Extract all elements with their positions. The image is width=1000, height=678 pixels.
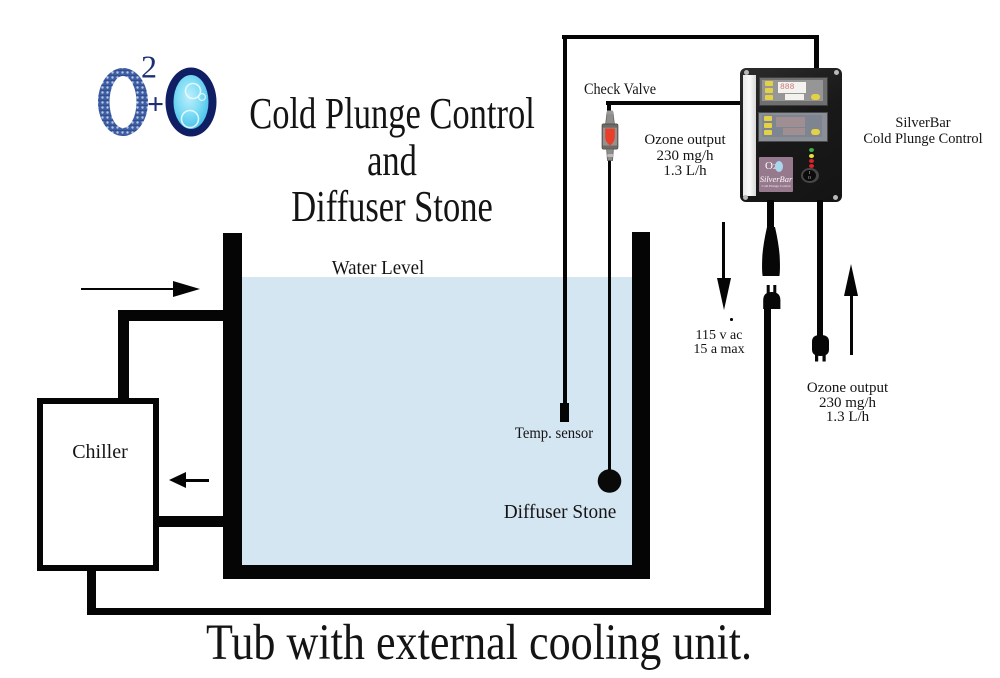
svg-text:+: + [147,88,164,121]
svg-text:2: 2 [141,49,157,85]
